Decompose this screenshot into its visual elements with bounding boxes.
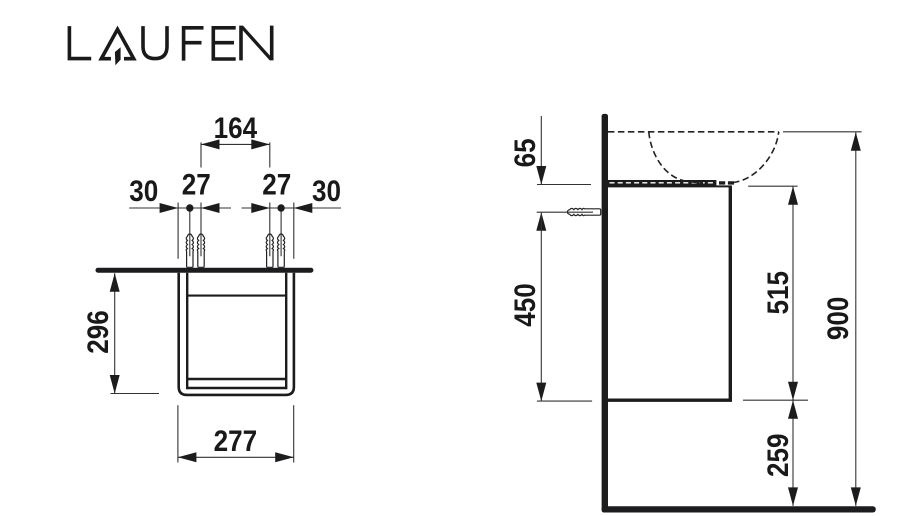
svg-text:515: 515 bbox=[762, 271, 795, 315]
svg-text:296: 296 bbox=[82, 310, 115, 354]
svg-text:277: 277 bbox=[214, 425, 258, 458]
svg-text:450: 450 bbox=[509, 283, 542, 327]
svg-text:900: 900 bbox=[822, 297, 855, 341]
svg-text:65: 65 bbox=[509, 138, 542, 167]
svg-text:259: 259 bbox=[762, 433, 795, 477]
svg-text:30: 30 bbox=[129, 175, 158, 208]
svg-text:27: 27 bbox=[262, 169, 291, 202]
svg-text:164: 164 bbox=[214, 112, 258, 145]
svg-text:27: 27 bbox=[182, 169, 211, 202]
svg-text:30: 30 bbox=[312, 175, 341, 208]
